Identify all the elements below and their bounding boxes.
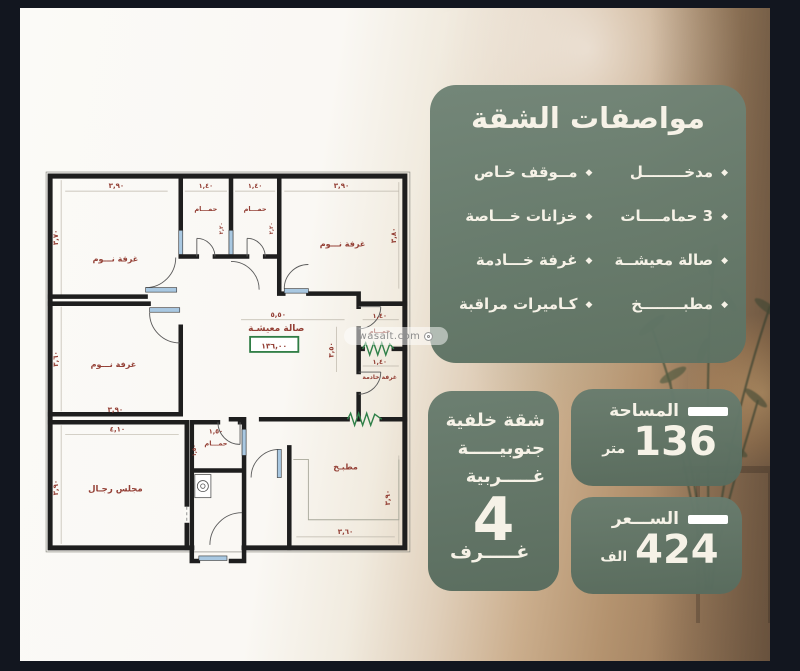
dim-bedroom1-depth: ٣,٧٠ bbox=[51, 230, 60, 246]
flyer-root: ١٣٦,٠٠ غرفة نـــوم حمـــام حمـــام غرفة … bbox=[0, 0, 800, 671]
dim-kitchen-depth: ٣,٩٠ bbox=[383, 490, 392, 506]
orientation-line: شقة خلفية bbox=[442, 407, 545, 435]
floor-plan: ١٣٦,٠٠ غرفة نـــوم حمـــام حمـــام غرفة … bbox=[45, 166, 417, 568]
spec-item-maid-room: ◆ غرفة خـــادمة bbox=[444, 251, 592, 269]
spec-label: كـاميرات مراقبة bbox=[459, 295, 577, 313]
spec-item-kitchen: ◆ مطبــــــــخ bbox=[596, 295, 728, 313]
dim-bath4-width: ١,٥٠ bbox=[209, 427, 223, 435]
dim-living-width: ٥,٥٠ bbox=[270, 310, 286, 319]
room-label-bath-4: حمـــام bbox=[204, 439, 227, 447]
spec-label: غرفة خـــادمة bbox=[476, 251, 578, 269]
diamond-bullet-icon: ◆ bbox=[721, 169, 728, 178]
spec-item-closets: ◆ خزانات خـــاصة bbox=[444, 207, 592, 225]
spec-label: خزانات خـــاصة bbox=[465, 207, 577, 225]
spec-item-bathrooms: ◆ 3 حمامــــات bbox=[596, 207, 728, 225]
specs-panel: مواصفات الشقة ◆ مدخــــــــل ◆ مــوقف خـ… bbox=[430, 85, 746, 363]
room-label-bedroom-2: غرفة نـــوم bbox=[320, 239, 366, 248]
orientation-box: شقة خلفية جنوبيـــــة غـــــربية 4 غــــ… bbox=[428, 391, 559, 591]
orientation-line: جنوبيـــــة bbox=[442, 435, 545, 463]
watermark: wasalt.com bbox=[344, 327, 448, 345]
room-label-bath-1: حمـــام bbox=[194, 205, 217, 213]
vent-zigzags bbox=[348, 343, 394, 425]
diamond-bullet-icon: ◆ bbox=[721, 257, 728, 266]
dim-bedroom1-width: ٣,٩٠ bbox=[109, 181, 125, 190]
panel-title: مواصفات الشقة bbox=[448, 101, 728, 135]
dim-majlis-depth: ٣,٩٠ bbox=[51, 480, 60, 496]
copyright-dot-icon bbox=[424, 332, 433, 341]
dim-bath3-width: ١,٤٠ bbox=[373, 312, 387, 320]
dash-icon bbox=[688, 515, 728, 524]
area-label-row: المساحة bbox=[585, 401, 728, 421]
dim-bath2-depth: ٢,٢٠ bbox=[269, 222, 275, 234]
diamond-bullet-icon: ◆ bbox=[585, 169, 592, 178]
washer-icon bbox=[195, 475, 211, 498]
price-value-row: 424 الف bbox=[585, 530, 728, 570]
dim-bedroom2-depth: ٣,٨٠ bbox=[389, 228, 398, 244]
diamond-bullet-icon: ◆ bbox=[721, 213, 728, 222]
area-value: 136 bbox=[633, 422, 717, 462]
area-box: المساحة 136 متر bbox=[571, 389, 742, 486]
dim-bath4-depth: ١,٥٠ bbox=[192, 444, 198, 456]
dim-bedroom2-width: ٣,٩٠ bbox=[334, 181, 350, 190]
dim-bath2-width: ١,٤٠ bbox=[248, 182, 262, 190]
dim-bedroom3-width: ٣,٩٠ bbox=[108, 405, 124, 414]
diamond-bullet-icon: ◆ bbox=[585, 301, 592, 310]
spec-list: ◆ مدخــــــــل ◆ مــوقف خـاص ◆ 3 حمامـــ… bbox=[448, 163, 728, 313]
diamond-bullet-icon: ◆ bbox=[721, 301, 728, 310]
spec-label: صالة معيشــة bbox=[615, 251, 714, 269]
dim-majlis-width: ٤,١٠ bbox=[110, 424, 126, 433]
room-label-bath-2: حمـــام bbox=[244, 205, 267, 213]
dim-living-depth: ٣,٥٠ bbox=[327, 342, 336, 358]
dim-bath1-width: ١,٤٠ bbox=[199, 182, 213, 190]
spec-label: مطبــــــــخ bbox=[631, 295, 713, 313]
room-label-living: صالة معيشـة bbox=[248, 324, 304, 334]
spec-item-living: ◆ صالة معيشــة bbox=[596, 251, 728, 269]
watermark-text: wasalt.com bbox=[359, 331, 421, 342]
spec-item-entrance: ◆ مدخــــــــل bbox=[596, 163, 728, 181]
window-marks bbox=[146, 230, 309, 560]
dim-maid-width: ١,٤٠ bbox=[373, 358, 387, 366]
room-label-bedroom-3: غرفة نـــوم bbox=[91, 360, 137, 369]
price-value: 424 bbox=[635, 530, 719, 570]
dash-icon bbox=[688, 407, 728, 416]
room-label-maid: غرفة خادمة bbox=[362, 374, 397, 381]
spec-item-cameras: ◆ كـاميرات مراقبة bbox=[444, 295, 592, 313]
price-label: الســـعر bbox=[612, 509, 679, 529]
spec-item-parking: ◆ مــوقف خـاص bbox=[444, 163, 592, 181]
area-stamp-value: ١٣٦,٠٠ bbox=[261, 341, 287, 350]
price-label-row: الســـعر bbox=[585, 509, 728, 529]
spec-label: 3 حمامــــات bbox=[620, 207, 713, 225]
room-label-majlis: مجلس رجـال bbox=[88, 485, 143, 495]
diamond-bullet-icon: ◆ bbox=[585, 213, 592, 222]
diamond-bullet-icon: ◆ bbox=[585, 257, 592, 266]
price-box: الســـعر 424 الف bbox=[571, 497, 742, 594]
spec-label: مدخــــــــل bbox=[630, 163, 713, 181]
dim-kitchen-width: ٣,٦٠ bbox=[338, 527, 354, 536]
area-value-row: 136 متر bbox=[585, 422, 728, 462]
rooms-count-label: غـــــرف bbox=[442, 541, 545, 563]
area-label: المساحة bbox=[609, 401, 679, 421]
room-label-bedroom-1: غرفة نـــوم bbox=[93, 254, 139, 263]
dim-bedroom3-depth: ٣,٦٠ bbox=[51, 351, 60, 367]
rooms-count: 4 bbox=[442, 493, 545, 547]
room-label-kitchen: مطبـخ bbox=[333, 463, 358, 472]
price-unit: الف bbox=[600, 549, 627, 565]
dim-bath1-depth: ٢,٢٠ bbox=[219, 222, 225, 234]
area-unit: متر bbox=[602, 441, 625, 457]
spec-label: مــوقف خـاص bbox=[474, 163, 578, 181]
